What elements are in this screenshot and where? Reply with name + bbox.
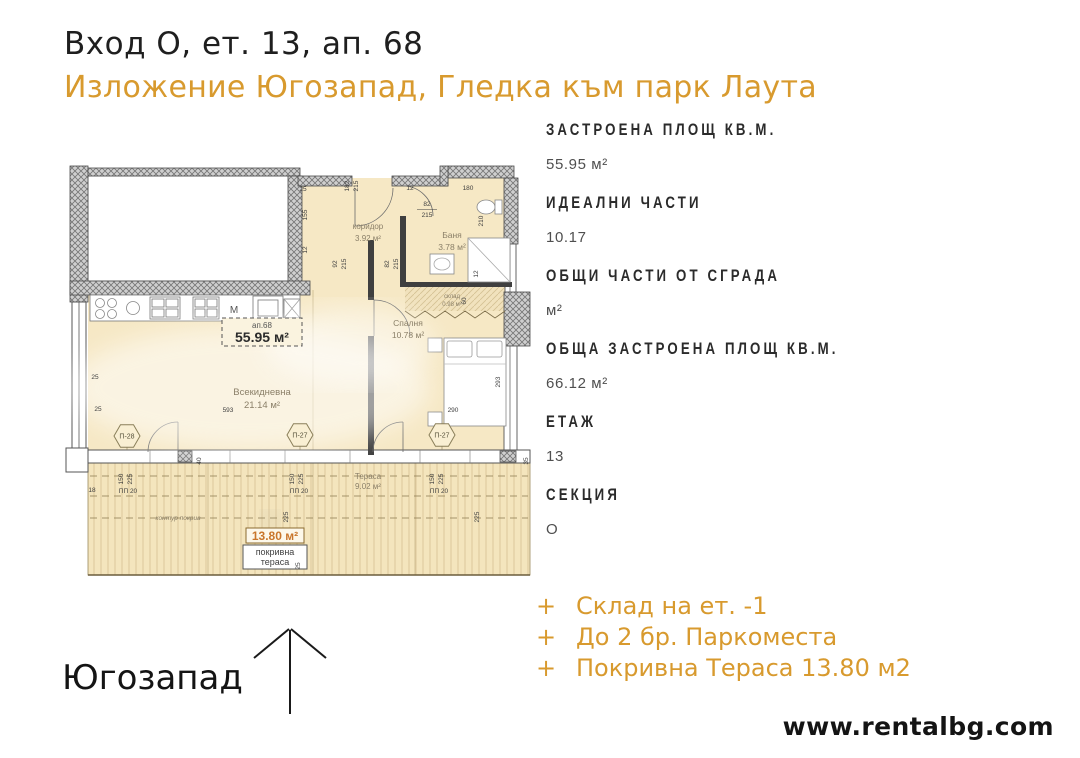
svg-text:215: 215 [353,180,360,191]
svg-text:35: 35 [523,457,530,465]
detail-value: О [546,521,976,538]
detail-floor: ЕТАЖ 13 [546,412,976,465]
svg-text:150: 150 [118,473,125,484]
storage-name: склад [444,294,461,300]
hex-mark-2: П-27 [292,433,307,440]
detail-value: 55.95 м² [546,156,976,173]
svg-text:225: 225 [438,473,445,484]
features-list: + Склад на ет. -1 + До 2 бр. Паркоместа … [536,591,911,684]
svg-text:82: 82 [384,260,391,268]
svg-text:593: 593 [223,407,234,414]
detail-label: ОБЩА ЗАСТРОЕНА ПЛОЩ КВ.М. [546,339,839,359]
roof-contour-label: контур покрив [155,515,201,522]
hex-mark-1: П-28 [119,434,134,441]
roof-terrace-name-1: покривна [256,547,295,557]
corridor-name: коридор [353,222,384,231]
svg-text:182: 182 [344,180,351,191]
terrace-name: Тераса [355,472,382,481]
detail-common-parts: ОБЩИ ЧАСТИ ОТ СГРАДА м² [546,266,976,319]
svg-text:ПП 20: ПП 20 [119,488,138,495]
plus-icon: + [536,622,576,653]
unit-label-box: ап.68 55.95 м² [222,318,302,346]
detail-label: ИДЕАЛНИ ЧАСТИ [546,193,702,213]
page-title: Вход О, ет. 13, ап. 68 [64,26,423,62]
feature-item: + Склад на ет. -1 [536,591,911,622]
detail-label: ОБЩИ ЧАСТИ ОТ СГРАДА [546,266,780,286]
detail-built-area: ЗАСТРОЕНА ПЛОЩ КВ.М. 55.95 м² [546,120,976,173]
detail-label: СЕКЦИЯ [546,485,620,505]
roof-terrace-area: 13.80 м² [252,529,298,543]
svg-text:60: 60 [461,297,468,305]
kitchen-counter [90,295,300,321]
floorplan: М ап.68 55.95 м² коридор [64,160,539,585]
listing-page: Вход О, ет. 13, ап. 68 Изложение Югозапа… [0,0,1080,758]
svg-text:225: 225 [298,473,305,484]
svg-text:155: 155 [302,209,309,220]
svg-text:290: 290 [448,407,459,414]
svg-text:18: 18 [88,487,96,494]
feature-item: + Покривна Тераса 13.80 м2 [536,653,911,684]
svg-text:92: 92 [332,260,339,268]
roof-terrace-floor [88,462,530,575]
plus-icon: + [536,591,576,622]
svg-text:150: 150 [429,473,436,484]
svg-text:210: 210 [478,215,485,226]
svg-text:25: 25 [299,186,307,193]
plus-icon: + [536,653,576,684]
svg-text:150: 150 [289,473,296,484]
feature-text: Покривна Тераса 13.80 м2 [576,653,911,684]
bath-area: 3.78 м² [438,242,466,252]
svg-text:225: 225 [127,473,134,484]
svg-text:12: 12 [473,270,480,278]
detail-value: 66.12 м² [546,375,976,392]
svg-text:25: 25 [295,562,302,570]
svg-text:12: 12 [406,185,414,192]
svg-text:215: 215 [341,258,348,269]
detail-total-area: ОБЩА ЗАСТРОЕНА ПЛОЩ КВ.М. 66.12 м² [546,339,976,392]
svg-text:225: 225 [474,511,481,522]
detail-value: 13 [546,448,976,465]
detail-value: м² [546,302,976,319]
detail-label: ЗАСТРОЕНА ПЛОЩ КВ.М. [546,120,776,140]
bedroom-area: 10.78 м² [392,330,424,340]
adjacent-unit-void [88,176,298,281]
bedroom-name: Спалня [393,318,423,328]
svg-text:215: 215 [393,258,400,269]
kitchen-m-label: М [230,305,238,316]
terrace-area: 9.02 м² [355,482,381,491]
detail-ideal-parts: ИДЕАЛНИ ЧАСТИ 10.17 [546,193,976,246]
svg-text:40: 40 [196,457,203,465]
unit-area: 55.95 м² [235,329,289,345]
bath-name: Баня [442,230,462,240]
detail-label: ЕТАЖ [546,412,596,432]
hex-mark-3: П-27 [434,433,449,440]
feature-text: До 2 бр. Паркоместа [576,622,837,653]
corridor-area: 3.92 м² [355,234,381,243]
svg-text:ПП 20: ПП 20 [430,488,449,495]
website-link[interactable]: www.rentalbg.com [783,712,1054,741]
page-subtitle: Изложение Югозапад, Гледка към парк Лаут… [64,70,817,105]
svg-text:12: 12 [302,246,309,254]
svg-text:180: 180 [463,185,474,192]
living-name: Всекидневна [233,387,291,398]
storage-area: 0.98 м² [442,302,461,308]
svg-text:293: 293 [495,376,502,387]
svg-text:225: 225 [283,511,290,522]
detail-value: 10.17 [546,229,976,246]
svg-text:82: 82 [423,201,431,208]
terrace-wall [88,450,530,463]
feature-text: Склад на ет. -1 [576,591,767,622]
svg-text:ПП 20: ПП 20 [290,488,309,495]
feature-item: + До 2 бр. Паркоместа [536,622,911,653]
living-area: 21.14 м² [244,400,280,411]
svg-text:25: 25 [94,406,102,413]
roof-terrace-name-2: тераса [261,557,290,567]
detail-section: СЕКЦИЯ О [546,485,976,538]
north-arrow-icon [246,614,336,718]
svg-text:215: 215 [422,212,433,219]
details-panel: ЗАСТРОЕНА ПЛОЩ КВ.М. 55.95 м² ИДЕАЛНИ ЧА… [546,120,976,558]
compass-direction-label: Югозапад [62,658,243,698]
svg-text:25: 25 [91,374,99,381]
